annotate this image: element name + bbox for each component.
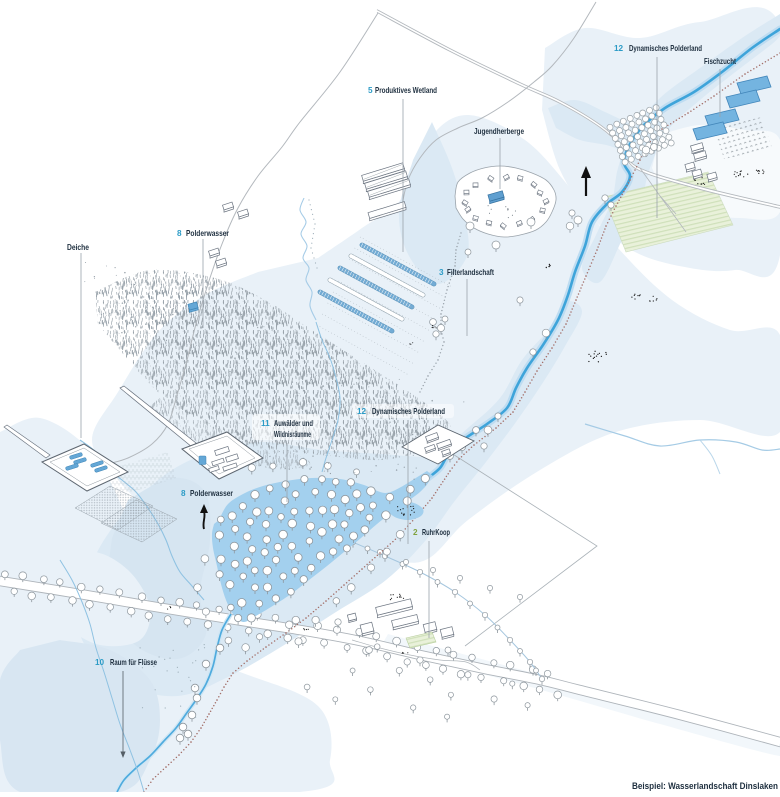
svg-text:5: 5 — [368, 86, 373, 95]
svg-text:Polderwasser: Polderwasser — [186, 229, 230, 238]
svg-text:10: 10 — [95, 658, 105, 667]
svg-text:Deiche: Deiche — [67, 243, 89, 252]
svg-text:8: 8 — [181, 489, 186, 498]
svg-text:Auwälder und: Auwälder und — [274, 419, 313, 428]
svg-text:RuhrKoop: RuhrKoop — [422, 528, 450, 537]
svg-text:Filterlandschaft: Filterlandschaft — [447, 268, 494, 277]
svg-text:Beispiel: Wasserlandschaft Din: Beispiel: Wasserlandschaft Dinslaken — [632, 780, 778, 791]
svg-text:Jugendherberge: Jugendherberge — [474, 127, 524, 136]
svg-text:12: 12 — [614, 44, 624, 53]
svg-text:Raum für Flüsse: Raum für Flüsse — [110, 658, 157, 667]
svg-text:Dynamisches Polderland: Dynamisches Polderland — [629, 44, 702, 53]
svg-text:12: 12 — [357, 407, 367, 416]
svg-text:Wildnisräunme: Wildnisräunme — [274, 430, 311, 439]
svg-text:Fischzucht: Fischzucht — [704, 57, 736, 66]
svg-text:2: 2 — [413, 528, 418, 537]
svg-text:3: 3 — [439, 268, 444, 277]
svg-text:Dynamisches Polderland: Dynamisches Polderland — [372, 407, 445, 416]
svg-text:Produktives Wetland: Produktives Wetland — [375, 86, 437, 95]
svg-text:Polderwasser: Polderwasser — [190, 489, 234, 498]
svg-text:8: 8 — [177, 229, 182, 238]
svg-text:11: 11 — [261, 419, 270, 428]
